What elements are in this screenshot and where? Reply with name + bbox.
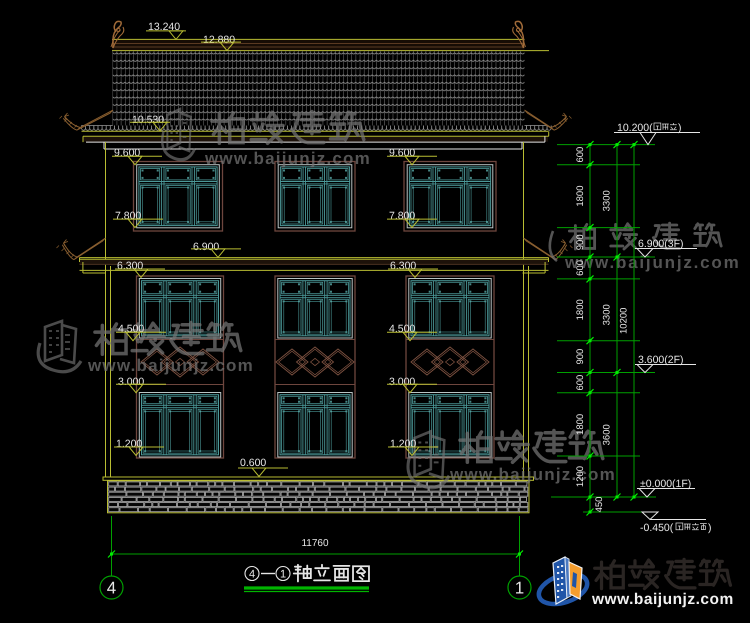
svg-text:900: 900 bbox=[575, 234, 586, 250]
svg-text:1800: 1800 bbox=[575, 299, 586, 320]
svg-text:0.600: 0.600 bbox=[240, 457, 266, 469]
svg-text:11760: 11760 bbox=[301, 538, 329, 549]
svg-text:6.900: 6.900 bbox=[193, 241, 219, 253]
svg-text:3300: 3300 bbox=[602, 190, 613, 211]
svg-text:3600: 3600 bbox=[602, 424, 613, 445]
svg-text:1: 1 bbox=[280, 569, 286, 581]
svg-text:1800: 1800 bbox=[575, 186, 586, 207]
svg-text:1200: 1200 bbox=[575, 466, 586, 487]
svg-text:9.600: 9.600 bbox=[114, 147, 140, 159]
svg-text:3.000: 3.000 bbox=[389, 376, 415, 388]
svg-text:www.baijunjz.com: www.baijunjz.com bbox=[591, 591, 734, 608]
svg-text:900: 900 bbox=[575, 349, 586, 365]
svg-text:600: 600 bbox=[575, 375, 586, 391]
svg-text:6.300: 6.300 bbox=[390, 260, 416, 272]
svg-text:www.baijunjz.com: www.baijunjz.com bbox=[449, 465, 616, 484]
svg-text:3300: 3300 bbox=[602, 304, 613, 325]
svg-text:1.200: 1.200 bbox=[390, 438, 416, 450]
svg-text:12.880: 12.880 bbox=[203, 34, 235, 46]
svg-text:10200: 10200 bbox=[619, 308, 630, 334]
svg-text:7.800: 7.800 bbox=[115, 210, 141, 222]
svg-text:www.baijunjz.com: www.baijunjz.com bbox=[204, 149, 371, 168]
svg-text:600: 600 bbox=[575, 147, 586, 163]
svg-text:450: 450 bbox=[594, 497, 605, 513]
svg-text:-0.450(: -0.450( bbox=[640, 522, 674, 534]
svg-text:600: 600 bbox=[575, 260, 586, 276]
svg-text:): ) bbox=[708, 522, 712, 534]
svg-text:4.500: 4.500 bbox=[118, 323, 144, 335]
svg-text:4: 4 bbox=[249, 569, 255, 581]
svg-text:1800: 1800 bbox=[575, 414, 586, 435]
svg-text:www.baijunjz.com: www.baijunjz.com bbox=[87, 356, 254, 375]
svg-text:4: 4 bbox=[107, 579, 116, 598]
svg-text:1: 1 bbox=[515, 579, 524, 598]
svg-text:4.500: 4.500 bbox=[389, 323, 415, 335]
svg-text:1.200: 1.200 bbox=[116, 438, 142, 450]
svg-text:9.600: 9.600 bbox=[389, 147, 415, 159]
svg-text:7.800: 7.800 bbox=[389, 210, 415, 222]
svg-text:10.530: 10.530 bbox=[132, 114, 164, 126]
svg-text:6.300: 6.300 bbox=[117, 260, 143, 272]
